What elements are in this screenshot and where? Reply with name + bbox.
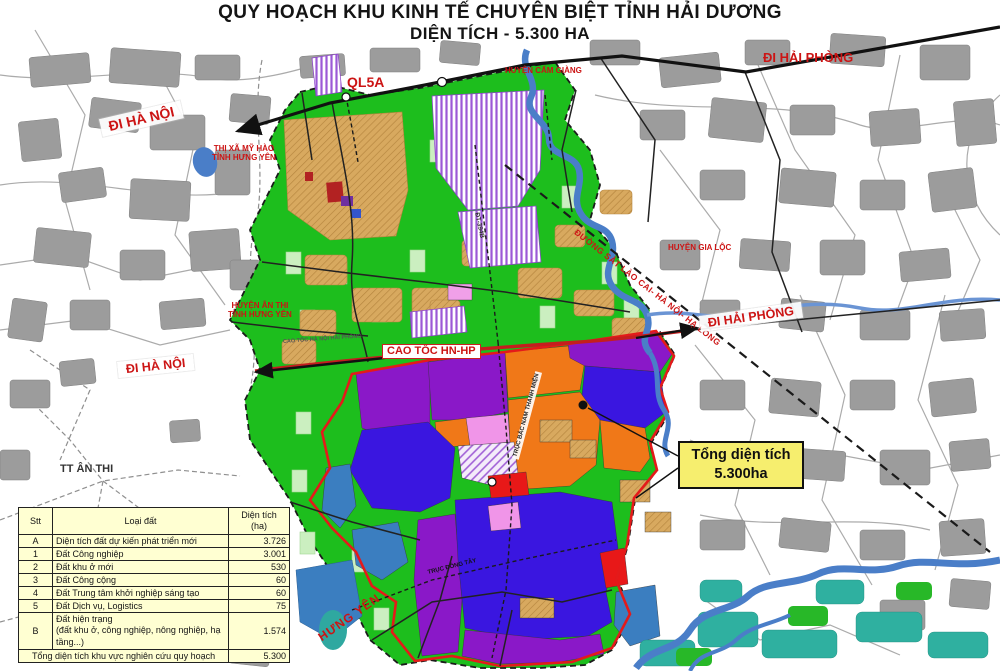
label-thi-xa-my-hao: THỊ XÃ MỸ HÀO TỈNH HƯNG YÊN — [212, 144, 276, 162]
label-huyen-cam-giang: HUYỆN CẨM GIÀNG — [505, 66, 582, 75]
header-stt: Stt — [19, 508, 53, 535]
cell-stt: 4 — [19, 587, 53, 600]
label-tt-an-thi: TT ÂN THI — [60, 463, 113, 476]
table-row: 5 Đất Dịch vụ, Logistics 75 — [19, 600, 290, 613]
map-title-line2: DIỆN TÍCH - 5.300 HA — [0, 24, 1000, 44]
cell-dt: 60 — [229, 587, 290, 600]
cell-dt: 3.726 — [229, 535, 290, 548]
table-row: A Diện tích đất dự kiến phát triển mới 3… — [19, 535, 290, 548]
footer-value: 5.300 — [229, 649, 290, 662]
table-footer-row: Tổng diện tích khu vực nghiên cứu quy ho… — [19, 649, 290, 662]
callout-line2: 5.300ha — [680, 465, 802, 484]
label-huyen-an-thi: HUYỆN ÂN THI TỈNH HƯNG YÊN — [228, 301, 292, 319]
route-marker — [342, 93, 350, 101]
cell-dt: 75 — [229, 600, 290, 613]
cell-loai: Đất Công nghiệp — [52, 548, 228, 561]
planning-map: QUY HOẠCH KHU KINH TẾ CHUYÊN BIỆT TỈNH H… — [0, 0, 1000, 671]
label-ql5a: QL5A — [347, 74, 384, 90]
cell-loai: Đất Dịch vụ, Logistics — [52, 600, 228, 613]
header-dien-tich: Diện tích (ha) — [229, 508, 290, 535]
table-header-row: Stt Loại đất Diện tích (ha) — [19, 508, 290, 535]
table-row: 2 Đất khu ở mới 530 — [19, 561, 290, 574]
cell-stt: A — [19, 535, 53, 548]
land-use-table: Stt Loại đất Diện tích (ha) A Diện tích … — [18, 507, 290, 663]
table-row: 1 Đất Công nghiệp 3.001 — [19, 548, 290, 561]
table-row: 4 Đất Trung tâm khởi nghiệp sáng tạo 60 — [19, 587, 290, 600]
label-huyen-gia-loc: HUYỆN GIA LỘC — [668, 243, 731, 252]
callout-line1: Tổng diện tích — [680, 446, 802, 465]
label-cao-toc-hn-hp: CAO TỐC HN-HP — [382, 344, 481, 359]
route-marker — [438, 78, 447, 87]
table-row: B Đất hiện trạng (đất khu ở, công nghiệp… — [19, 613, 290, 650]
cell-dt: 530 — [229, 561, 290, 574]
cell-stt: 3 — [19, 574, 53, 587]
total-area-callout: Tổng diện tích 5.300ha — [678, 441, 804, 489]
cell-stt: 2 — [19, 561, 53, 574]
header-loai-dat: Loại đất — [52, 508, 228, 535]
cell-loai: Đất Trung tâm khởi nghiệp sáng tạo — [52, 587, 228, 600]
map-title-line1: QUY HOẠCH KHU KINH TẾ CHUYÊN BIỆT TỈNH H… — [0, 2, 1000, 24]
cell-stt: B — [19, 613, 53, 650]
junction-circle — [488, 478, 496, 486]
cell-loai: Đất Công cộng — [52, 574, 228, 587]
cell-stt: 5 — [19, 600, 53, 613]
footer-label: Tổng diện tích khu vực nghiên cứu quy ho… — [19, 649, 229, 662]
cell-loai: Đất khu ở mới — [52, 561, 228, 574]
table-row: 3 Đất Công cộng 60 — [19, 574, 290, 587]
cell-dt: 60 — [229, 574, 290, 587]
cell-dt: 1.574 — [229, 613, 290, 650]
cell-dt: 3.001 — [229, 548, 290, 561]
cell-loai: Đất hiện trạng (đất khu ở, công nghiệp, … — [52, 613, 228, 650]
spot-dot — [579, 401, 588, 410]
label-di-hai-phong-top: ĐI HẢI PHÒNG — [763, 51, 853, 66]
cell-loai: Diện tích đất dự kiến phát triển mới — [52, 535, 228, 548]
cell-stt: 1 — [19, 548, 53, 561]
